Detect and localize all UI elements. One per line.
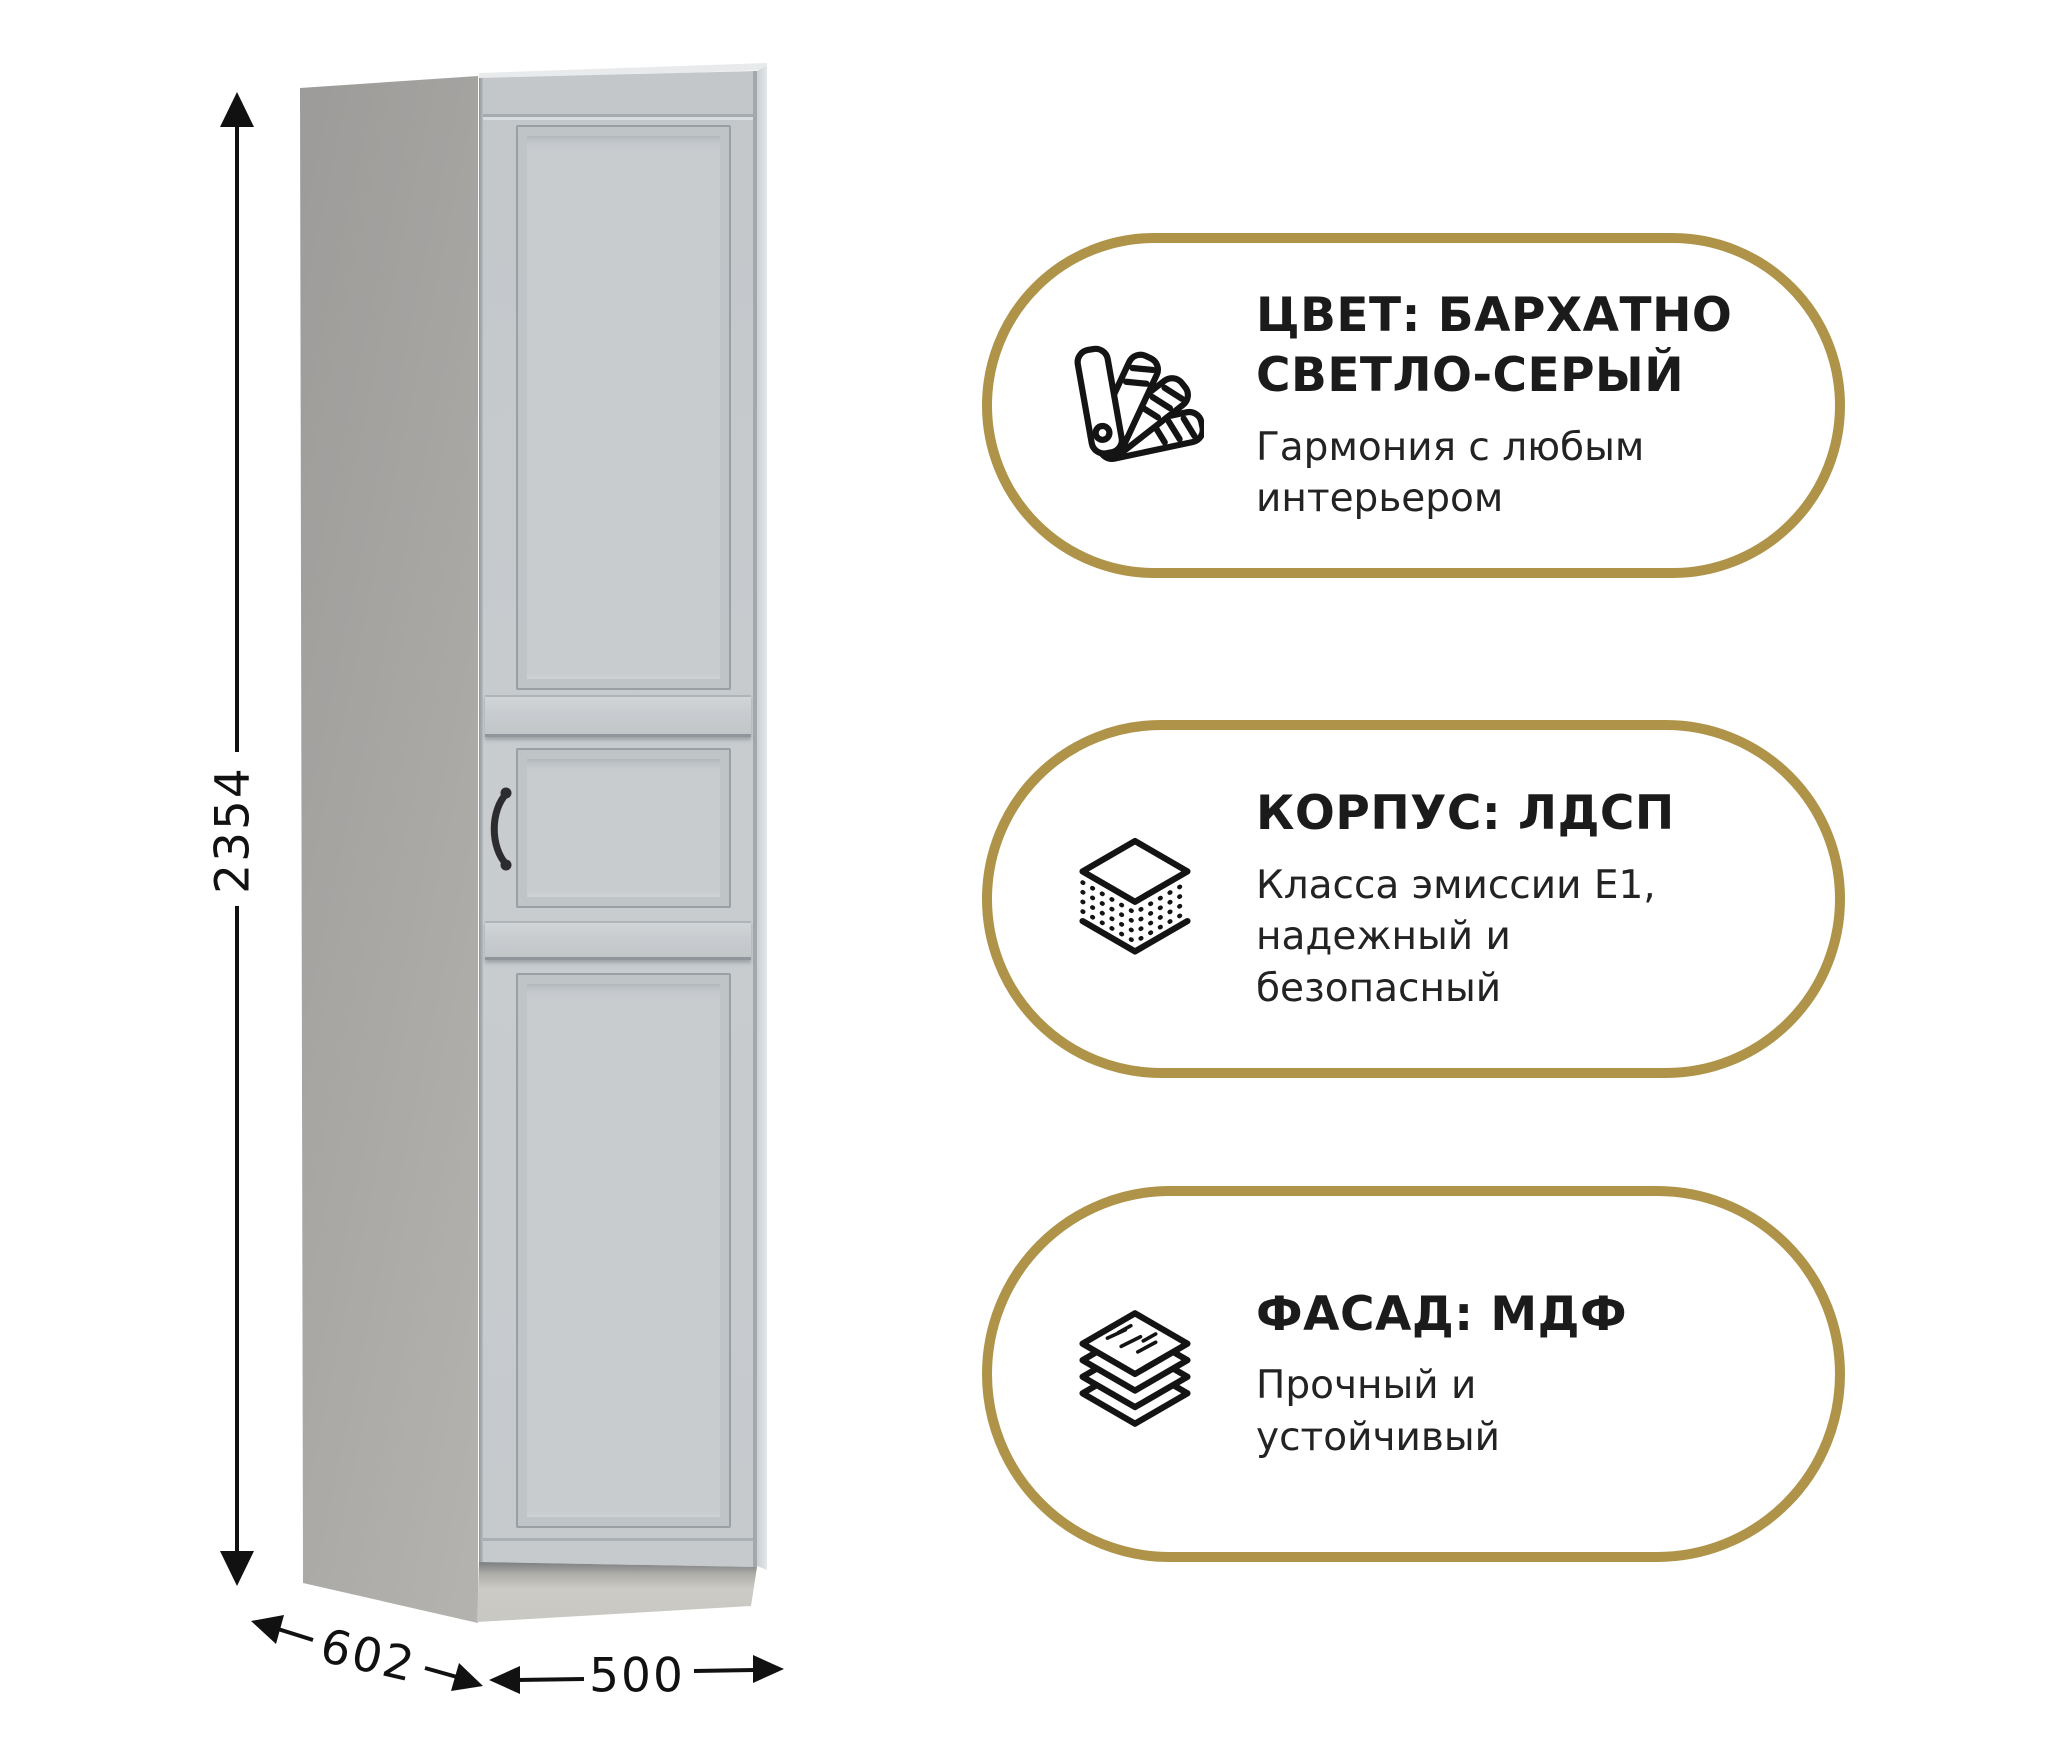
color-swatches-icon [1066, 337, 1204, 475]
badge-color-subtitle: Гармония с любым интерьером [1256, 422, 1732, 525]
badge-color: ЦВЕТ: БАРХАТНО СВЕТЛО-СЕРЫЙ Гармония с л… [982, 233, 1845, 578]
height-dimension-label: 2354 [206, 766, 261, 894]
badge-body-material: КОРПУС: ЛДСП Класса эмиссии Е1, надежный… [982, 720, 1845, 1078]
badge-facade-text: ФАСАД: МДФ Прочный и устойчивый [1256, 1285, 1627, 1464]
stacked-sheets-icon [1066, 1305, 1204, 1443]
badge-body-subtitle: Класса эмиссии Е1, надежный и безопасный [1256, 860, 1675, 1014]
badge-color-title: ЦВЕТ: БАРХАТНО СВЕТЛО-СЕРЫЙ [1256, 286, 1732, 405]
board-layers-icon [1066, 830, 1204, 968]
width-dimension-label: 500 [589, 1649, 685, 1704]
badge-color-text: ЦВЕТ: БАРХАТНО СВЕТЛО-СЕРЫЙ Гармония с л… [1256, 286, 1732, 524]
badge-facade-subtitle: Прочный и устойчивый [1256, 1360, 1627, 1463]
badge-facade-title: ФАСАД: МДФ [1256, 1285, 1627, 1345]
badge-body-text: КОРПУС: ЛДСП Класса эмиссии Е1, надежный… [1256, 784, 1675, 1014]
badge-body-title: КОРПУС: ЛДСП [1256, 784, 1675, 844]
product-infographic: 2354 602 500 [0, 0, 2055, 1763]
badge-facade-material: ФАСАД: МДФ Прочный и устойчивый [982, 1186, 1845, 1562]
